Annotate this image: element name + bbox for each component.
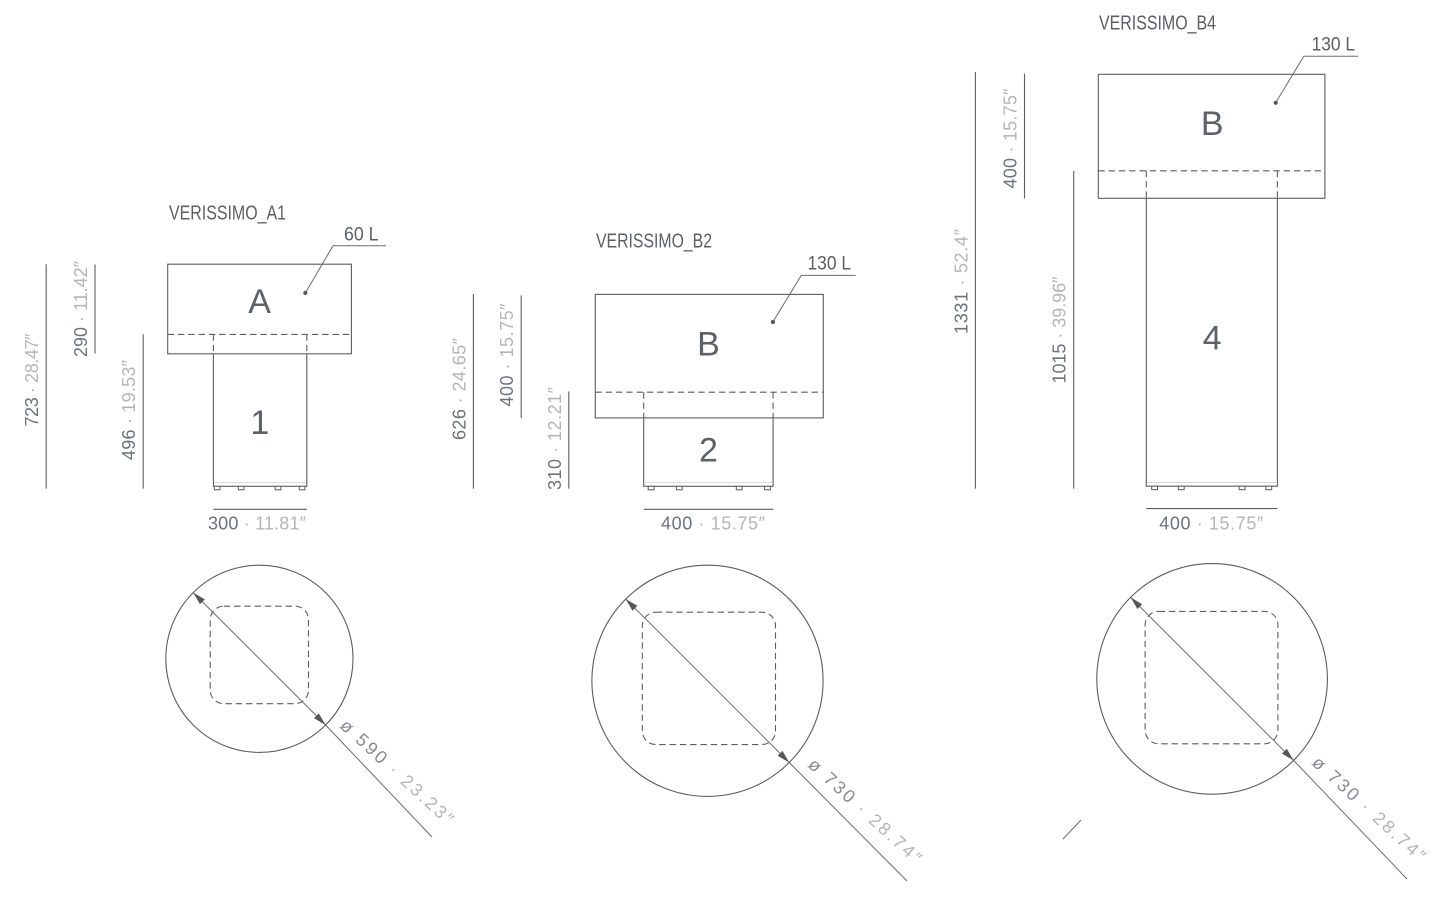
svg-text:290 · 11.42″: 290 · 11.42″: [71, 260, 91, 357]
svg-text:VERISSIMO_B4: VERISSIMO_B4: [1099, 12, 1216, 34]
svg-text:A: A: [248, 283, 271, 321]
svg-text:310 · 12.21″: 310 · 12.21″: [545, 386, 565, 490]
svg-text:496 · 19.53″: 496 · 19.53″: [119, 359, 139, 460]
svg-text:130 L: 130 L: [1312, 35, 1356, 56]
svg-text:1015 · 39.96″: 1015 · 39.96″: [1050, 276, 1070, 384]
svg-text:400 · 15.75″: 400 · 15.75″: [497, 303, 517, 407]
svg-text:130 L: 130 L: [808, 254, 852, 275]
svg-text:723 · 28.47″: 723 · 28.47″: [22, 333, 42, 427]
svg-text:1: 1: [250, 404, 269, 442]
svg-text:400 · 15.75″: 400 · 15.75″: [661, 513, 766, 533]
svg-text:VERISSIMO_A1: VERISSIMO_A1: [169, 203, 286, 225]
svg-text:VERISSIMO_B2: VERISSIMO_B2: [596, 231, 712, 253]
svg-text:2: 2: [699, 432, 718, 470]
svg-text:300 · 11.81″: 300 · 11.81″: [208, 513, 307, 533]
svg-text:1331 · 52.4″: 1331 · 52.4″: [951, 228, 971, 334]
svg-text:400 · 15.75″: 400 · 15.75″: [1159, 513, 1264, 533]
svg-text:B: B: [1201, 105, 1224, 143]
svg-text:B: B: [697, 325, 720, 363]
svg-text:400 · 15.75″: 400 · 15.75″: [1001, 88, 1021, 189]
svg-text:4: 4: [1203, 320, 1222, 358]
svg-text:626 · 24.65″: 626 · 24.65″: [449, 337, 469, 440]
svg-text:60 L: 60 L: [344, 225, 379, 246]
